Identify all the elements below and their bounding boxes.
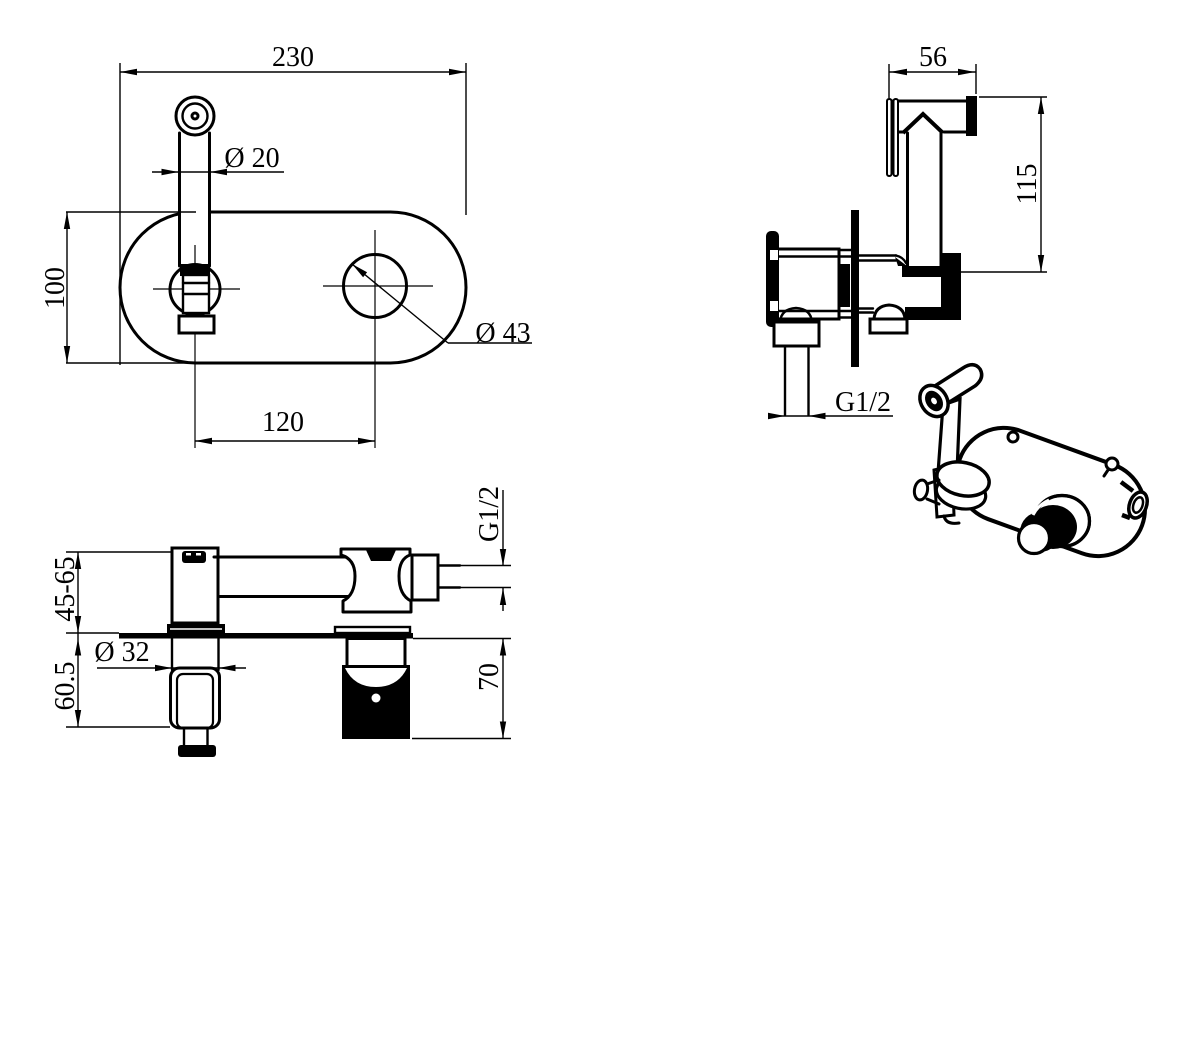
valve-end-cap bbox=[766, 231, 779, 327]
bottom-view: 45-65 60.5 Ø 32 G1/2 70 bbox=[50, 486, 511, 757]
isometric-view bbox=[913, 365, 1158, 570]
sprayer-holder-front bbox=[170, 264, 220, 333]
inlet-connection-side bbox=[774, 308, 819, 415]
sprayer-iso bbox=[913, 365, 992, 524]
nozzle-bar-inner bbox=[894, 99, 899, 176]
trigger bbox=[903, 114, 943, 133]
dimension-center-distance: 120 bbox=[195, 407, 375, 444]
sprayer-head-side bbox=[887, 96, 977, 176]
dim-outlet-thread-label: G1/2 bbox=[474, 486, 505, 542]
dim-mount-hole-label: Ø 32 bbox=[94, 637, 149, 668]
sprayer-head-front bbox=[176, 97, 214, 135]
front-view: 230 Ø 20 100 120 Ø bbox=[40, 42, 532, 448]
dim-depth-range-label: 45-65 bbox=[50, 556, 81, 621]
holder-bracket-section bbox=[902, 253, 961, 320]
dim-inlet-thread-label: G1/2 bbox=[835, 387, 891, 418]
valve-wall-connector bbox=[839, 264, 850, 307]
dimension-right-column: G1/2 70 bbox=[412, 486, 511, 739]
mounting-pin-top bbox=[1008, 432, 1018, 442]
dimension-mount-hole: Ø 32 bbox=[94, 637, 246, 671]
dim-body-depth-label: 70 bbox=[474, 663, 505, 691]
holder-assembly-bottom bbox=[167, 548, 225, 757]
escutcheon-plate-front bbox=[120, 212, 466, 363]
dim-head-length-label: 56 bbox=[919, 42, 947, 73]
mounting-pin-right bbox=[1104, 458, 1118, 476]
dim-spout-diameter-label: Ø 20 bbox=[224, 143, 279, 174]
dimension-inlet-thread: G1/2 bbox=[768, 387, 893, 419]
holder-boss-dome bbox=[874, 305, 905, 319]
dim-hole-diameter-label: Ø 43 bbox=[475, 318, 530, 349]
technical-drawing-page: 230 Ø 20 100 120 Ø bbox=[0, 0, 1185, 1058]
dim-recess-depth-label: 60.5 bbox=[50, 662, 81, 711]
outlet-fitting bbox=[412, 555, 438, 600]
dim-center-distance-label: 120 bbox=[262, 407, 304, 438]
wall-plate-edge bbox=[851, 210, 859, 367]
dim-front-height-label: 100 bbox=[40, 267, 71, 309]
dimension-hole-diameter: Ø 43 bbox=[352, 264, 532, 349]
dimension-front-width: 230 bbox=[120, 42, 466, 365]
holder-boss bbox=[870, 319, 907, 333]
dim-front-width-label: 230 bbox=[272, 42, 314, 73]
head-end-cap bbox=[966, 96, 977, 136]
nozzle-bar-outer bbox=[887, 99, 892, 176]
dimension-front-height: 100 bbox=[40, 212, 196, 363]
dimension-head-length: 56 bbox=[889, 42, 976, 98]
dimension-spout-diameter: Ø 20 bbox=[152, 143, 284, 175]
mixer-knob-iso bbox=[1019, 496, 1090, 554]
mixer-assembly-bottom bbox=[335, 549, 460, 739]
technical-drawing: 230 Ø 20 100 120 Ø bbox=[0, 0, 1185, 1058]
dim-side-height-label: 115 bbox=[1012, 164, 1043, 205]
side-view: 56 115 G1/2 bbox=[766, 42, 1047, 419]
